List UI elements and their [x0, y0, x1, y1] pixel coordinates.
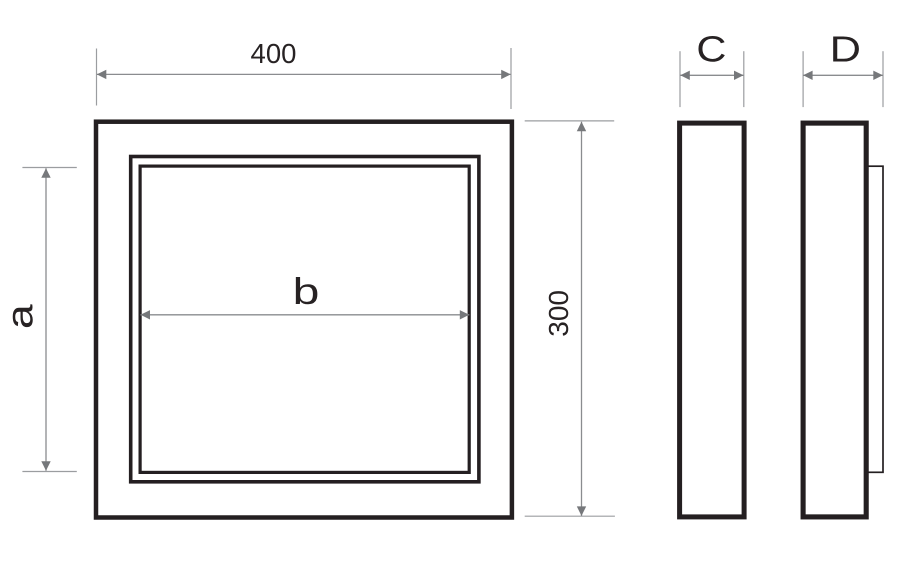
svg-text:300: 300	[543, 290, 574, 337]
svg-text:C: C	[696, 30, 726, 70]
svg-text:400: 400	[251, 38, 297, 69]
svg-text:b: b	[293, 271, 320, 312]
svg-text:a: a	[0, 304, 41, 329]
svg-text:D: D	[830, 30, 861, 70]
